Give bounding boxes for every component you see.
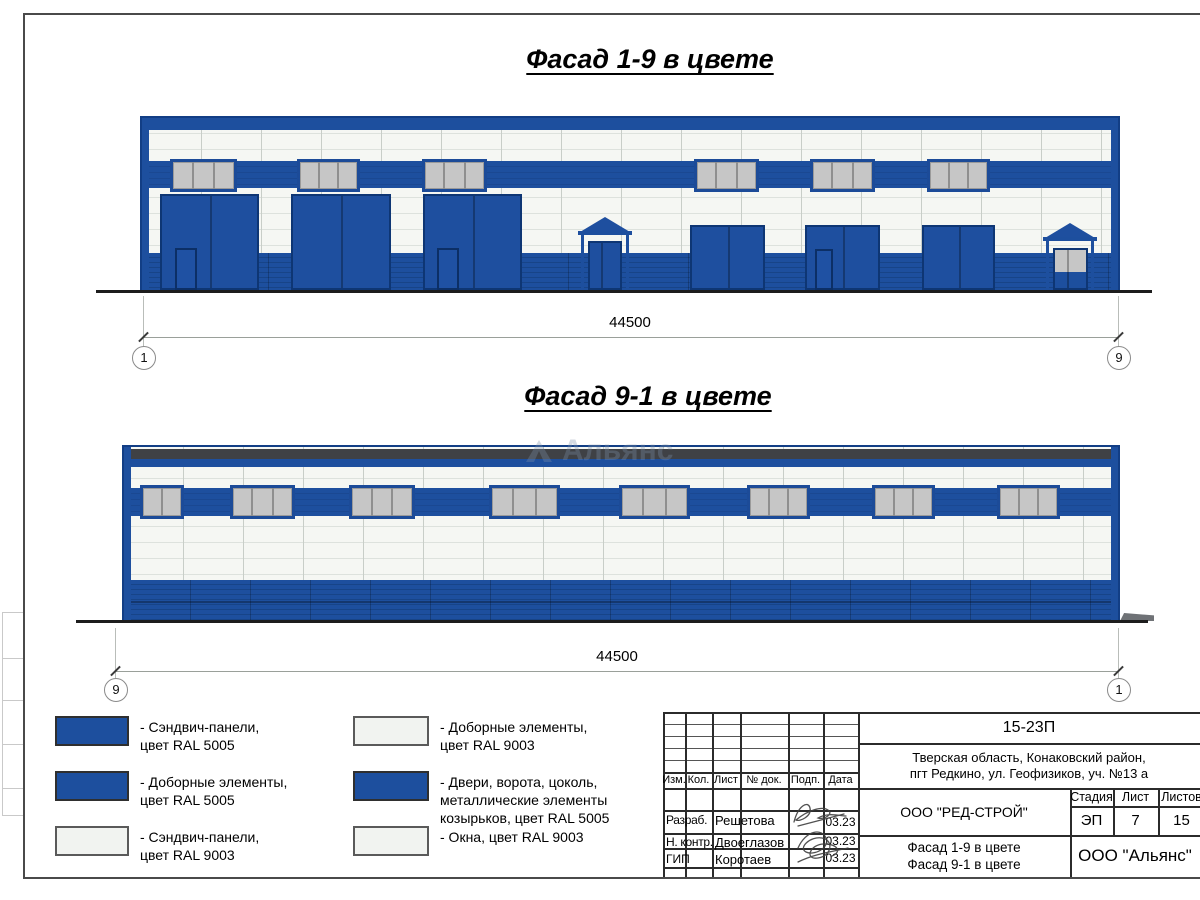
door [805,225,880,290]
gate-leaf-divider [210,196,212,288]
wicket-door [437,248,459,290]
listov-label: Листов [1158,788,1200,806]
ground-line [76,620,1148,623]
sheet-border-bottom [23,877,1200,879]
porch-fascia [578,231,632,235]
door [922,225,995,290]
stage-label: Стадия [1070,788,1113,806]
wicket-door [815,249,833,290]
window [810,159,875,192]
gate [423,194,522,290]
signature-marks [786,792,856,874]
legend-swatch-ral5005-doors [353,771,429,801]
margin-column-line [2,815,23,816]
org-name: ООО "Альянс" [1070,835,1200,877]
legend-swatch-ral5005-trim [55,771,129,801]
legend-label: - Сэндвич-панели, цвет RAL 5005 [140,718,380,754]
window [747,485,810,519]
door-leaf-divider [1067,250,1069,288]
window [694,159,759,192]
legend-label: - Окна, цвет RAL 9003 [440,828,680,846]
watermark-logo-icon [524,438,554,464]
margin-column-line [2,788,23,789]
door-leaf-divider [728,227,730,288]
watermark-text: Альянс [562,434,673,468]
drawing-sheet: Фасад 1-9 в цвете [0,0,1200,900]
project-address: Тверская область, Конаковский район, пгт… [858,743,1200,788]
gate [160,194,259,290]
window [422,159,487,192]
window [349,485,415,519]
col-podp: Подп. [788,772,823,788]
row-role: ГИП [666,852,690,866]
dimension-line [115,671,1118,672]
margin-column-line [2,700,23,701]
gate-leaf-divider [473,196,475,288]
wicket-door [175,248,197,290]
titleblock-line [663,760,858,761]
company-name: ООО "РЕД-СТРОЙ" [858,788,1070,835]
window [230,485,295,519]
watermark: Альянс [524,434,673,468]
legend-label: - Доборные элементы, цвет RAL 5005 [140,773,380,809]
titleblock-line [663,712,665,877]
col-izm: Изм. [663,772,685,788]
porch-post [626,235,629,290]
window [619,485,690,519]
porch-post [1091,241,1094,290]
titleblock-line [712,712,714,877]
top-band [142,118,1118,130]
margin-column-line [2,658,23,659]
sheet-border-left [23,13,25,879]
legend-label: - Сэндвич-панели, цвет RAL 9003 [140,828,380,864]
axis-marker: 1 [1107,678,1131,702]
margin-column-line [2,612,3,815]
door-leaf-divider [601,243,603,288]
door-lower-panel [1055,272,1086,288]
margin-column-line [2,744,23,745]
window [927,159,990,192]
dimension-value: 44500 [550,314,710,331]
extension-line [143,296,144,352]
ground-line [96,290,1152,293]
right-column [1111,447,1118,621]
left-column [124,447,131,621]
door [690,225,765,290]
dimension-value: 44500 [537,648,697,665]
gate-leaf-divider [341,196,343,288]
legend-swatch-ral9003-trim [353,716,429,746]
row-name: Коротаев [715,852,771,867]
list-value: 7 [1113,806,1158,835]
titleblock-line [663,736,858,737]
window [997,485,1060,519]
legend-label: - Доборные элементы, цвет RAL 9003 [440,718,680,754]
extension-line [1118,296,1119,352]
window [489,485,560,519]
row-name: Двоеглазов [715,835,784,850]
porch-fascia [1043,237,1097,241]
margin-column-line [2,612,23,613]
window [297,159,360,192]
extension-line [1118,628,1119,684]
sheet-title: Фасад 1-9 в цвете Фасад 9-1 в цвете [858,835,1070,877]
list-label: Лист [1113,788,1158,806]
axis-marker: 9 [104,678,128,702]
door-leaf-divider [959,227,961,288]
left-column [142,118,149,290]
sheet-border-top [23,13,1200,15]
row-role: Н. контр. [666,835,713,849]
legend-label: - Двери, ворота, цоколь, металлические э… [440,773,680,827]
dimension-line [143,337,1118,338]
row-role: Разраб. [666,813,707,827]
window [170,159,237,192]
entrance-door [588,241,622,290]
col-data: Дата [823,772,858,788]
facade-1-9-drawing [140,116,1120,292]
axis-marker: 1 [132,346,156,370]
plinth-seam [131,601,1111,603]
listov-value: 15 [1158,806,1200,835]
facade-9-1-title: Фасад 9-1 в цвете [418,381,878,412]
titleblock-line [663,748,858,749]
legend-swatch-ral9003-windows [353,826,429,856]
extension-line [115,628,116,684]
doc-code: 15-23П [858,712,1200,743]
row-name: Решетова [715,813,775,828]
porch-post [1046,241,1049,290]
porch-canopy [1045,223,1095,238]
window [140,485,184,519]
stage-value: ЭП [1070,806,1113,835]
door-leaf-divider [843,227,845,288]
window [872,485,935,519]
facade-1-9-title: Фасад 1-9 в цвете [420,44,880,75]
gate [291,194,391,290]
facade-9-1-drawing [122,445,1120,623]
legend-swatch-ral5005-panels [55,716,129,746]
col-kol: Кол. [685,772,712,788]
porch-canopy [580,217,630,232]
porch-post [581,235,584,290]
legend-swatch-ral9003-panels [55,826,129,856]
axis-marker: 9 [1107,346,1131,370]
col-doc: № док. [740,772,788,788]
col-list: Лист [712,772,740,788]
right-column [1111,118,1118,290]
titleblock-line [663,724,858,725]
entrance-door [1053,248,1088,290]
